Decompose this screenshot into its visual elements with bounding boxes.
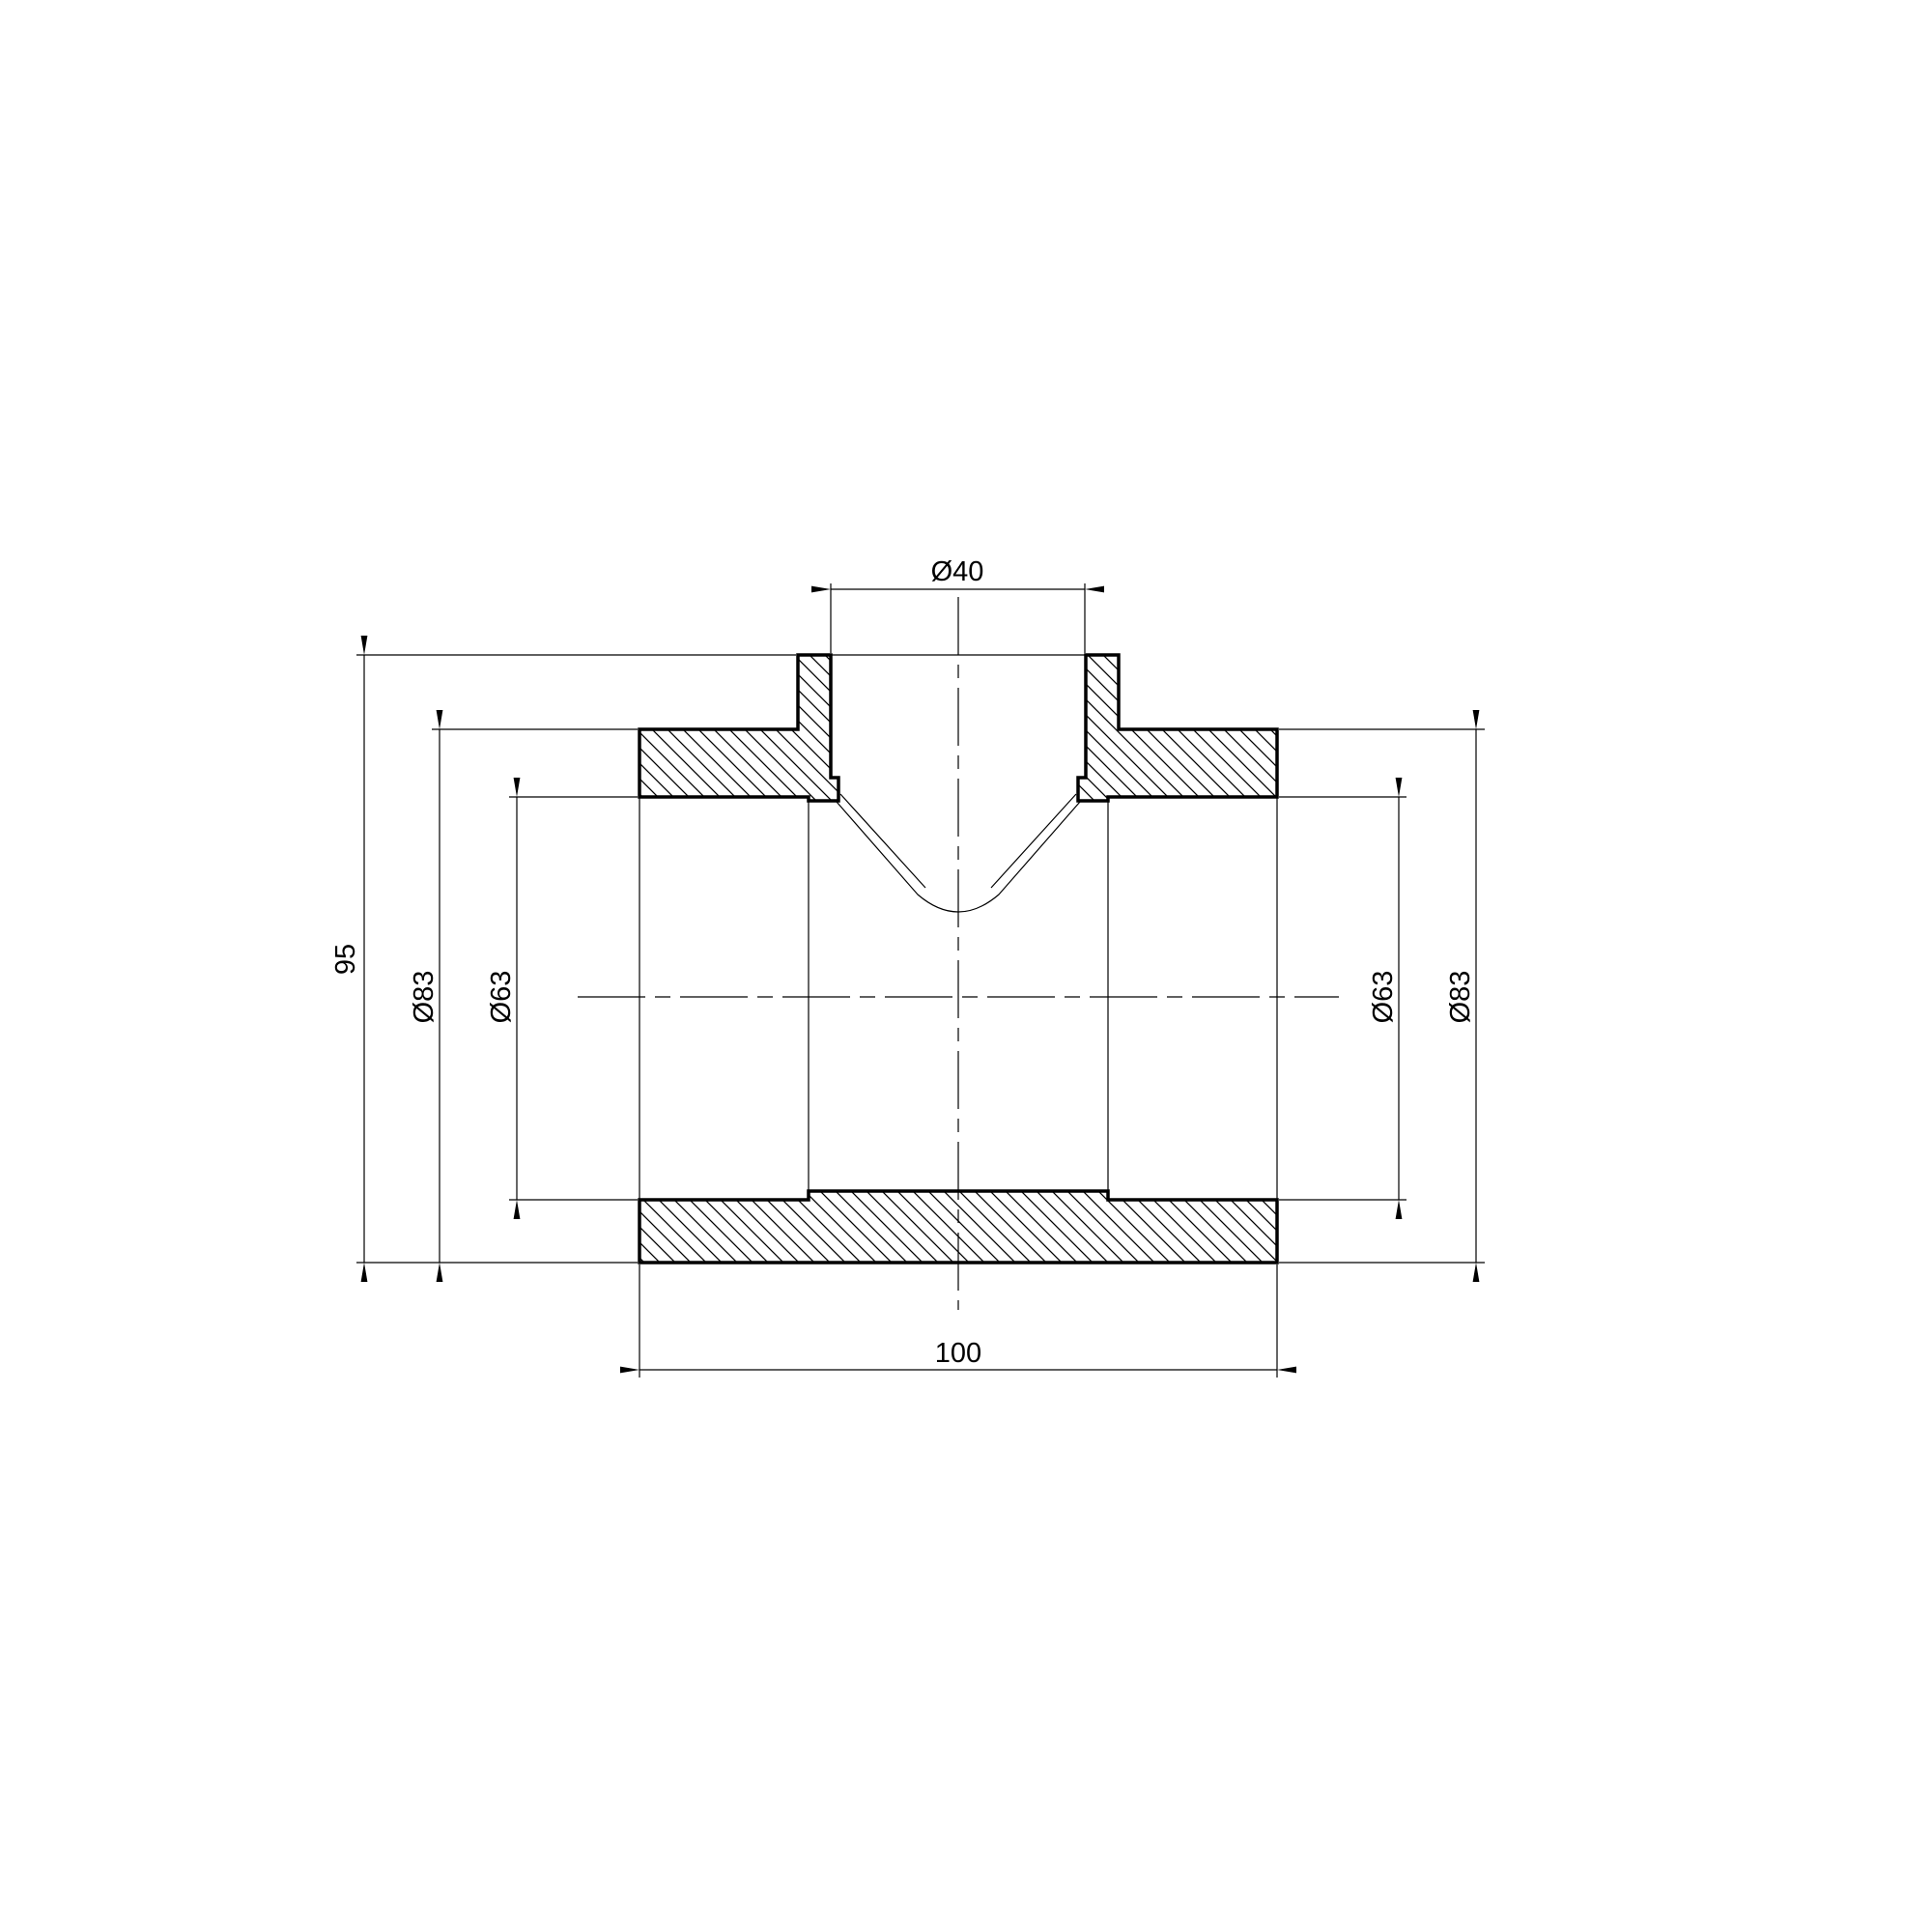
tee-fitting-section-drawing: Ø40 95 Ø83 Ø63 Ø63 bbox=[0, 0, 1932, 1932]
drawing-canvas: Ø40 95 Ø83 Ø63 Ø63 bbox=[0, 0, 1932, 1932]
dim-label-left-socket-bore: Ø63 bbox=[486, 971, 517, 1024]
dim-label-overall-length: 100 bbox=[935, 1338, 981, 1369]
funnel-outer-edge-right bbox=[991, 794, 1076, 888]
dimension-left-outer-diameter: Ø83 bbox=[409, 729, 638, 1263]
funnel-outer-edge-left bbox=[840, 794, 925, 888]
dim-label-left-outer-diameter: Ø83 bbox=[409, 971, 440, 1024]
dim-label-branch-bore: Ø40 bbox=[931, 556, 984, 587]
dim-label-overall-height: 95 bbox=[330, 944, 361, 975]
dim-label-right-socket-bore: Ø63 bbox=[1368, 971, 1399, 1024]
dimension-left-socket-bore: Ø63 bbox=[486, 797, 638, 1200]
dim-label-right-outer-diameter: Ø83 bbox=[1445, 971, 1476, 1024]
dimension-right-socket-bore: Ø63 bbox=[1279, 797, 1406, 1200]
top-left-wall-hatched bbox=[639, 655, 838, 801]
top-right-wall-hatched bbox=[1078, 655, 1277, 801]
